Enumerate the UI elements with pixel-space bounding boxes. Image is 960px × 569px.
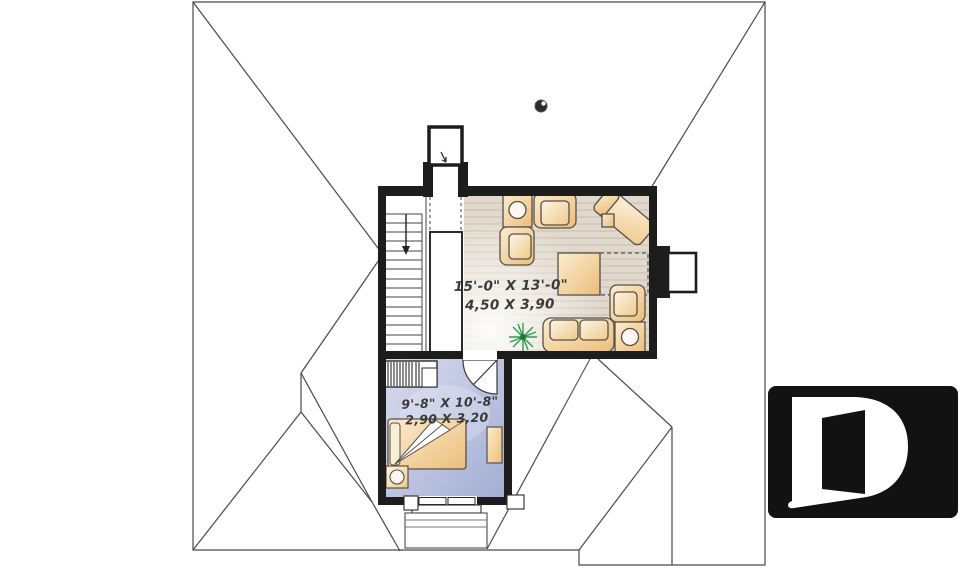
- fireplace: [649, 246, 696, 298]
- plant-icon: [509, 323, 537, 351]
- living-room-dim-imperial: 15'-0" X 13'-0": [454, 277, 568, 295]
- nightstand: [386, 466, 408, 488]
- side-table-lamp-top: [503, 194, 532, 227]
- armchair-left: [500, 227, 534, 265]
- chimney: [423, 127, 468, 197]
- floor-plan-drawing: 15'-0" X 13'-0" 4,50 X 3,90 9'-8" X 10'-…: [0, 0, 960, 569]
- lower-stairs-hatch: [385, 361, 437, 387]
- door-opening: [463, 350, 497, 360]
- bedroom-dim-metric: 2,90 X 3,20: [405, 410, 489, 428]
- living-room-dim-metric: 4,50 X 3,90: [464, 296, 555, 314]
- porch-steps: [405, 513, 487, 548]
- armchair-right: [610, 285, 645, 322]
- roof-vent-icon: [535, 100, 547, 112]
- dresser: [487, 427, 502, 463]
- bedroom-window: [412, 496, 481, 513]
- armchair-top: [534, 193, 576, 228]
- chaise-side-table: [602, 214, 614, 227]
- side-table-lamp-bottom: [615, 322, 645, 352]
- sofa: [543, 318, 614, 352]
- brand-logo: [768, 386, 958, 518]
- floor-plan-canvas: 15'-0" X 13'-0" 4,50 X 3,90 9'-8" X 10'-…: [0, 0, 960, 569]
